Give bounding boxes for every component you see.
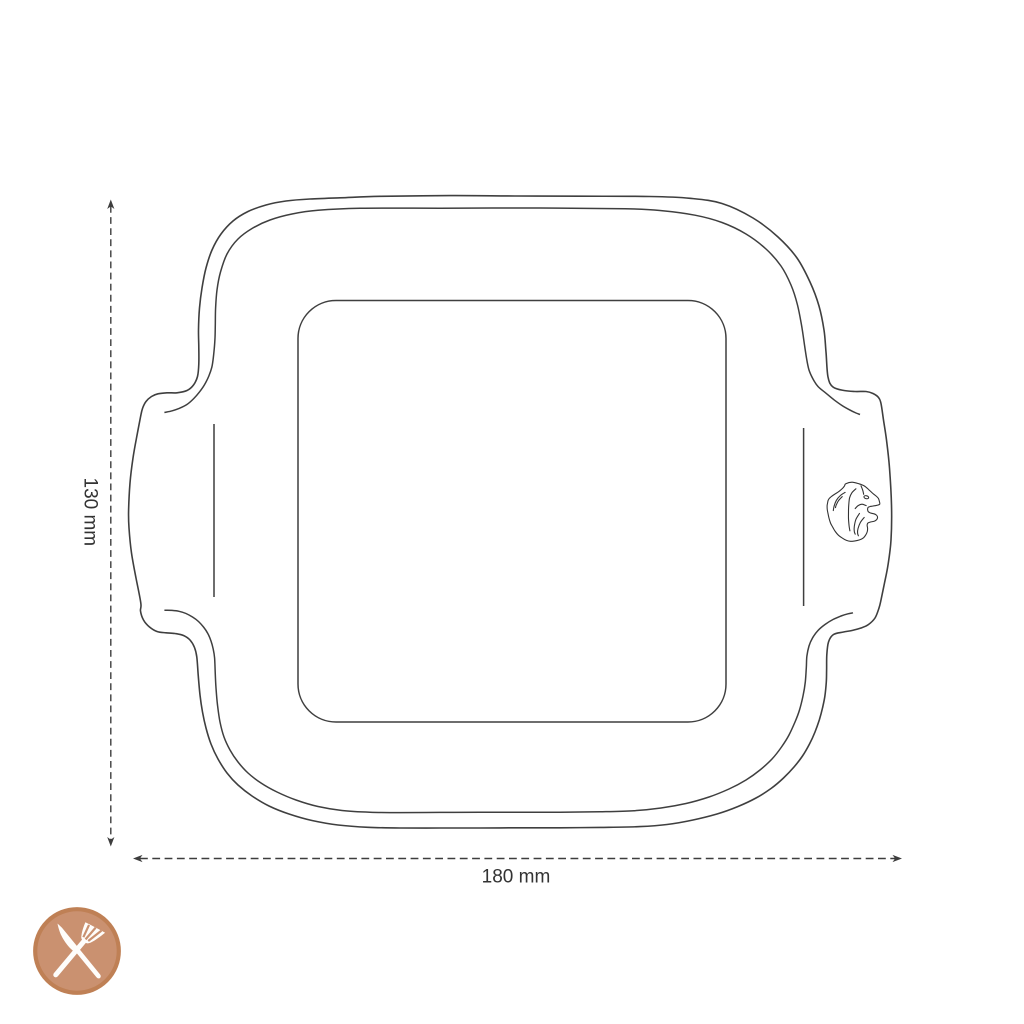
- svg-text:180 mm: 180 mm: [482, 867, 551, 888]
- svg-text:130 mm: 130 mm: [79, 478, 100, 547]
